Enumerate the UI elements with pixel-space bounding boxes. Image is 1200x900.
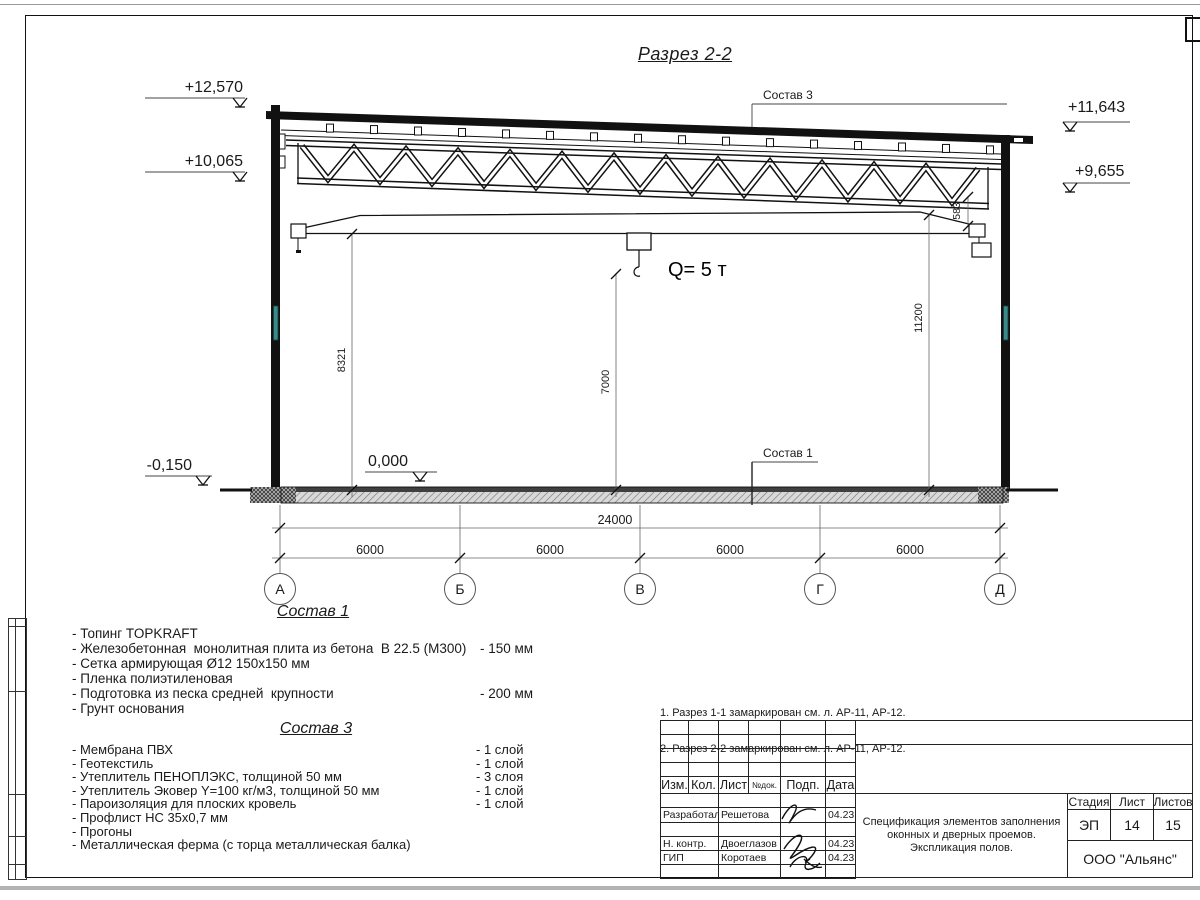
- titleblock-upper-box: [855, 744, 1193, 794]
- leader-sostav1: Состав 1: [763, 446, 813, 460]
- dim-24000: 24000: [598, 513, 633, 527]
- titleblock-designation-box: [855, 720, 1193, 745]
- window-right: [1004, 306, 1009, 340]
- date: 04.23: [826, 851, 856, 865]
- floor-slab: [220, 487, 1058, 503]
- col-izm: Изм.: [661, 777, 689, 794]
- col-data: Дата: [826, 777, 856, 794]
- col-kol: Кол.: [689, 777, 719, 794]
- left-margin-divider: [9, 691, 26, 692]
- section-drawing: +12,570 +10,065 -0,150 0,000 +11,643 +9,…: [0, 0, 1200, 620]
- row-ncontr: Н. контр. Двоеглазов 04.23: [661, 837, 856, 851]
- leaders: Состав 3 Состав 1: [752, 88, 1007, 505]
- dim-6000: 6000: [716, 543, 744, 557]
- sheet-label: Лист: [1110, 793, 1154, 810]
- dim-11200: 11200: [913, 303, 925, 333]
- dim-6000: 6000: [536, 543, 564, 557]
- stage-label: Стадия: [1067, 793, 1111, 810]
- left-margin-divider: [9, 626, 26, 627]
- elevation-label: 0,000: [368, 453, 408, 470]
- list-item: - Профлист НС 35х0,7 мм: [72, 810, 632, 824]
- item-value: - 150 мм: [480, 641, 533, 656]
- col-ndok: №док.: [749, 777, 781, 794]
- elevation-label: +11,643: [1068, 99, 1125, 116]
- sostav1-heading: Состав 1: [253, 603, 373, 621]
- date: 04.23: [826, 837, 856, 851]
- list-item: - Грунт основания: [72, 701, 632, 716]
- sheet-value: 14: [1110, 809, 1154, 841]
- crane-capacity-label: Q= 5 т: [668, 259, 727, 281]
- axis-v: В: [635, 581, 644, 597]
- name: Двоеглазов: [719, 837, 781, 851]
- left-margin-table: [8, 618, 27, 880]
- date: 04.23: [826, 808, 856, 823]
- list-item: - Сетка армирующая Ø12 150х150 мм: [72, 656, 632, 671]
- left-margin-divider: [9, 836, 26, 837]
- sostav3-heading: Состав 3: [256, 720, 376, 738]
- list-item: - Пленка полиэтиленовая: [72, 671, 632, 686]
- list-item: - Железобетонная монолитная плита из бет…: [72, 641, 632, 656]
- sheets-label: Листов: [1153, 793, 1193, 810]
- item-text: - Топинг TOPKRAFT: [72, 626, 198, 641]
- page-edge-bottom: [0, 886, 1200, 890]
- list-item: - Металлическая ферма (с торца металличе…: [72, 837, 632, 851]
- left-margin-divider: [15, 619, 16, 879]
- dim-8321: 8321: [336, 348, 348, 372]
- axis-d: Д: [995, 581, 1005, 597]
- doc-title-line: Спецификация элементов заполнения: [863, 816, 1061, 829]
- sostav3-list: - Мембрана ПВХ- 1 слой - Геотекстиль- 1 …: [72, 742, 632, 851]
- columns: [271, 105, 1010, 490]
- name: Коротаев: [719, 851, 781, 865]
- item-text: - Пленка полиэтиленовая: [72, 671, 233, 686]
- axis-g: Г: [816, 581, 824, 597]
- list-item: - Геотекстиль- 1 слой: [72, 756, 632, 770]
- left-margin-divider: [9, 864, 26, 865]
- stage-value: ЭП: [1067, 809, 1111, 841]
- titleblock-signature-table: Изм. Кол. Лист №док. Подп. Дата Разработ…: [660, 720, 856, 879]
- signature-cell: [781, 837, 826, 851]
- item-text: - Подготовка из песка средней крупности: [72, 686, 334, 701]
- crane-hook: [627, 233, 651, 276]
- item-text: - Сетка армирующая Ø12 150х150 мм: [72, 656, 310, 671]
- window-left: [274, 306, 279, 340]
- row-gip: ГИП Коротаев 04.23: [661, 851, 856, 865]
- leader-sostav3: Состав 3: [763, 88, 813, 102]
- elevation-label: +10,065: [185, 153, 243, 170]
- axis-b: Б: [455, 581, 464, 597]
- dim-583: 583: [951, 202, 963, 220]
- list-item: - Пароизоляция для плоских кровель- 1 сл…: [72, 796, 632, 810]
- dim-7000: 7000: [600, 370, 612, 394]
- drawing-sheet: Разрез 2-2: [0, 0, 1200, 900]
- dim-6000: 6000: [896, 543, 924, 557]
- role: Н. контр.: [661, 837, 719, 851]
- titleblock-header-row: Изм. Кол. Лист №док. Подп. Дата: [661, 777, 856, 794]
- vertical-dims: 8321 7000 11200 583: [336, 196, 968, 497]
- signature-cell: [781, 851, 826, 865]
- dim-6000: 6000: [356, 543, 384, 557]
- row-developed: Разработал Решетова 04.23: [661, 808, 856, 823]
- elevation-label: +12,570: [185, 79, 243, 96]
- sheets-value: 15: [1153, 809, 1193, 841]
- list-item: - Подготовка из песка средней крупности-…: [72, 686, 632, 701]
- item-text: - Металлическая ферма (с торца металличе…: [72, 837, 411, 852]
- col-list: Лист: [719, 777, 749, 794]
- col-podp: Подп.: [781, 777, 826, 794]
- signature-cell: [781, 808, 826, 823]
- list-item: - Топинг TOPKRAFT: [72, 626, 632, 641]
- elevation-label: +9,655: [1075, 163, 1124, 180]
- elevation-label: -0,150: [147, 457, 192, 474]
- name: Решетова: [719, 808, 781, 823]
- item-text: - Железобетонная монолитная плита из бет…: [72, 641, 466, 656]
- list-item: - Утеплитель Эковер Y=100 кг/м3, толщино…: [72, 783, 632, 797]
- list-item: - Утеплитель ПЕНОПЛЭКС, толщиной 50 мм- …: [72, 769, 632, 783]
- doc-title-cell: Спецификация элементов заполнения оконны…: [855, 793, 1068, 878]
- sostav1-list: - Топинг TOPKRAFT - Железобетонная монол…: [72, 626, 632, 716]
- role: ГИП: [661, 851, 719, 865]
- list-item: - Прогоны: [72, 824, 632, 838]
- list-item: - Мембрана ПВХ- 1 слой: [72, 742, 632, 756]
- note-line: 1. Разрез 1-1 замаркирован см. л. АР-11,…: [660, 707, 906, 719]
- role: Разработал: [661, 808, 719, 823]
- left-margin-divider: [9, 794, 26, 795]
- item-text: - Грунт основания: [72, 701, 184, 716]
- item-value: - 200 мм: [480, 686, 533, 701]
- doc-title-line: оконных и дверных проемов.: [887, 829, 1036, 842]
- axis-bubbles: А Б В Г Д: [265, 574, 1016, 605]
- company-name: ООО "Альянс": [1067, 840, 1193, 878]
- doc-title-line: Экспликация полов.: [910, 842, 1013, 855]
- axis-a: А: [275, 581, 285, 597]
